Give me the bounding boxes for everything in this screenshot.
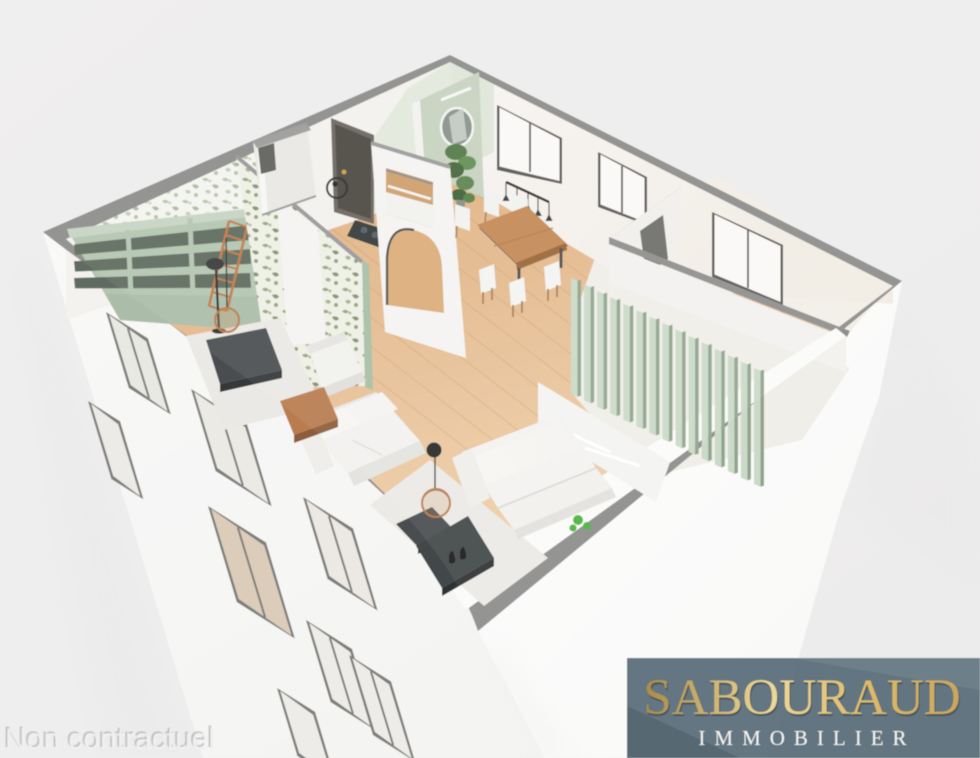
svg-text:IMMOBILIER: IMMOBILIER — [698, 726, 915, 750]
svg-text:Non contractuel: Non contractuel — [5, 723, 215, 756]
svg-text:SABOURAUD: SABOURAUD — [643, 670, 960, 726]
